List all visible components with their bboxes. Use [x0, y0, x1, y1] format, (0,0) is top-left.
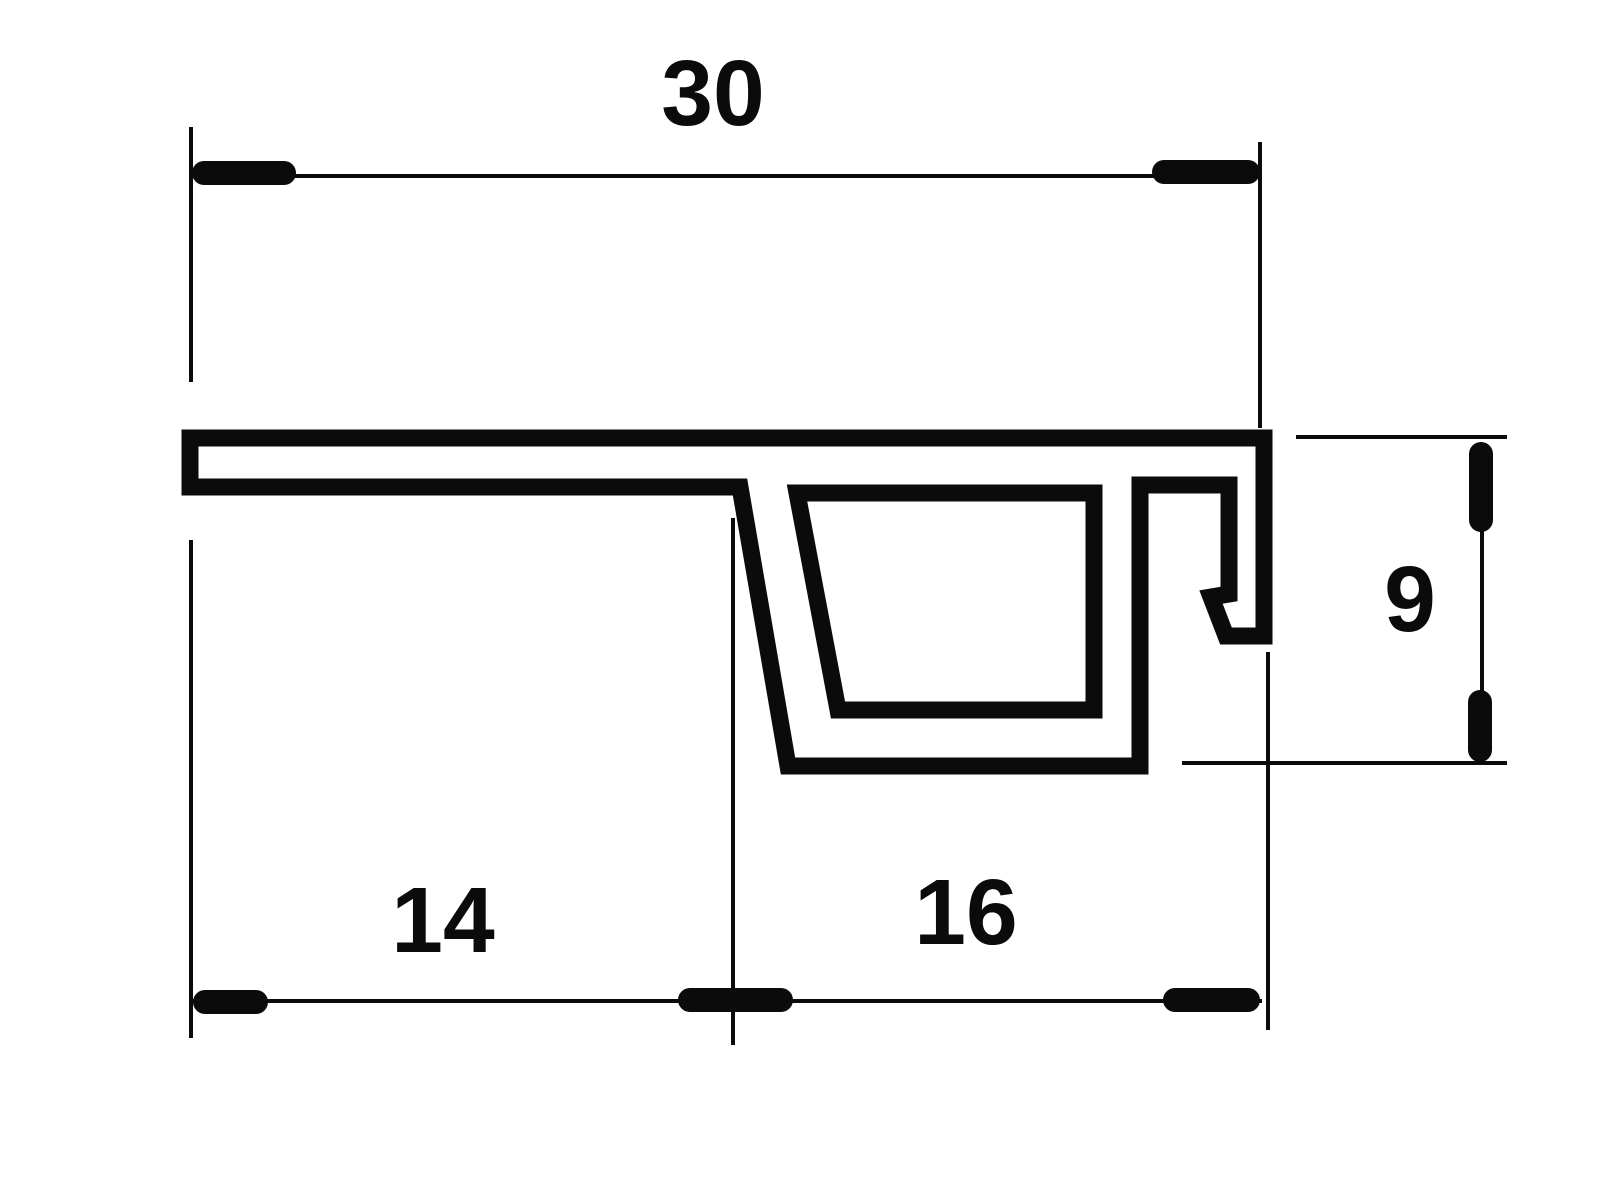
profile-channel-inner-contour [797, 493, 1094, 710]
drawing-canvas: 30 14 16 9 [0, 0, 1600, 1200]
dimension-label-left-segment: 14 [391, 868, 495, 972]
profile-outer-contour [190, 438, 1264, 766]
dimension-label-total-width: 30 [661, 41, 764, 145]
profile-drawing: 30 14 16 9 [0, 0, 1600, 1200]
dimension-label-right-segment: 16 [914, 860, 1017, 964]
dimension-label-side-height: 9 [1384, 547, 1436, 651]
